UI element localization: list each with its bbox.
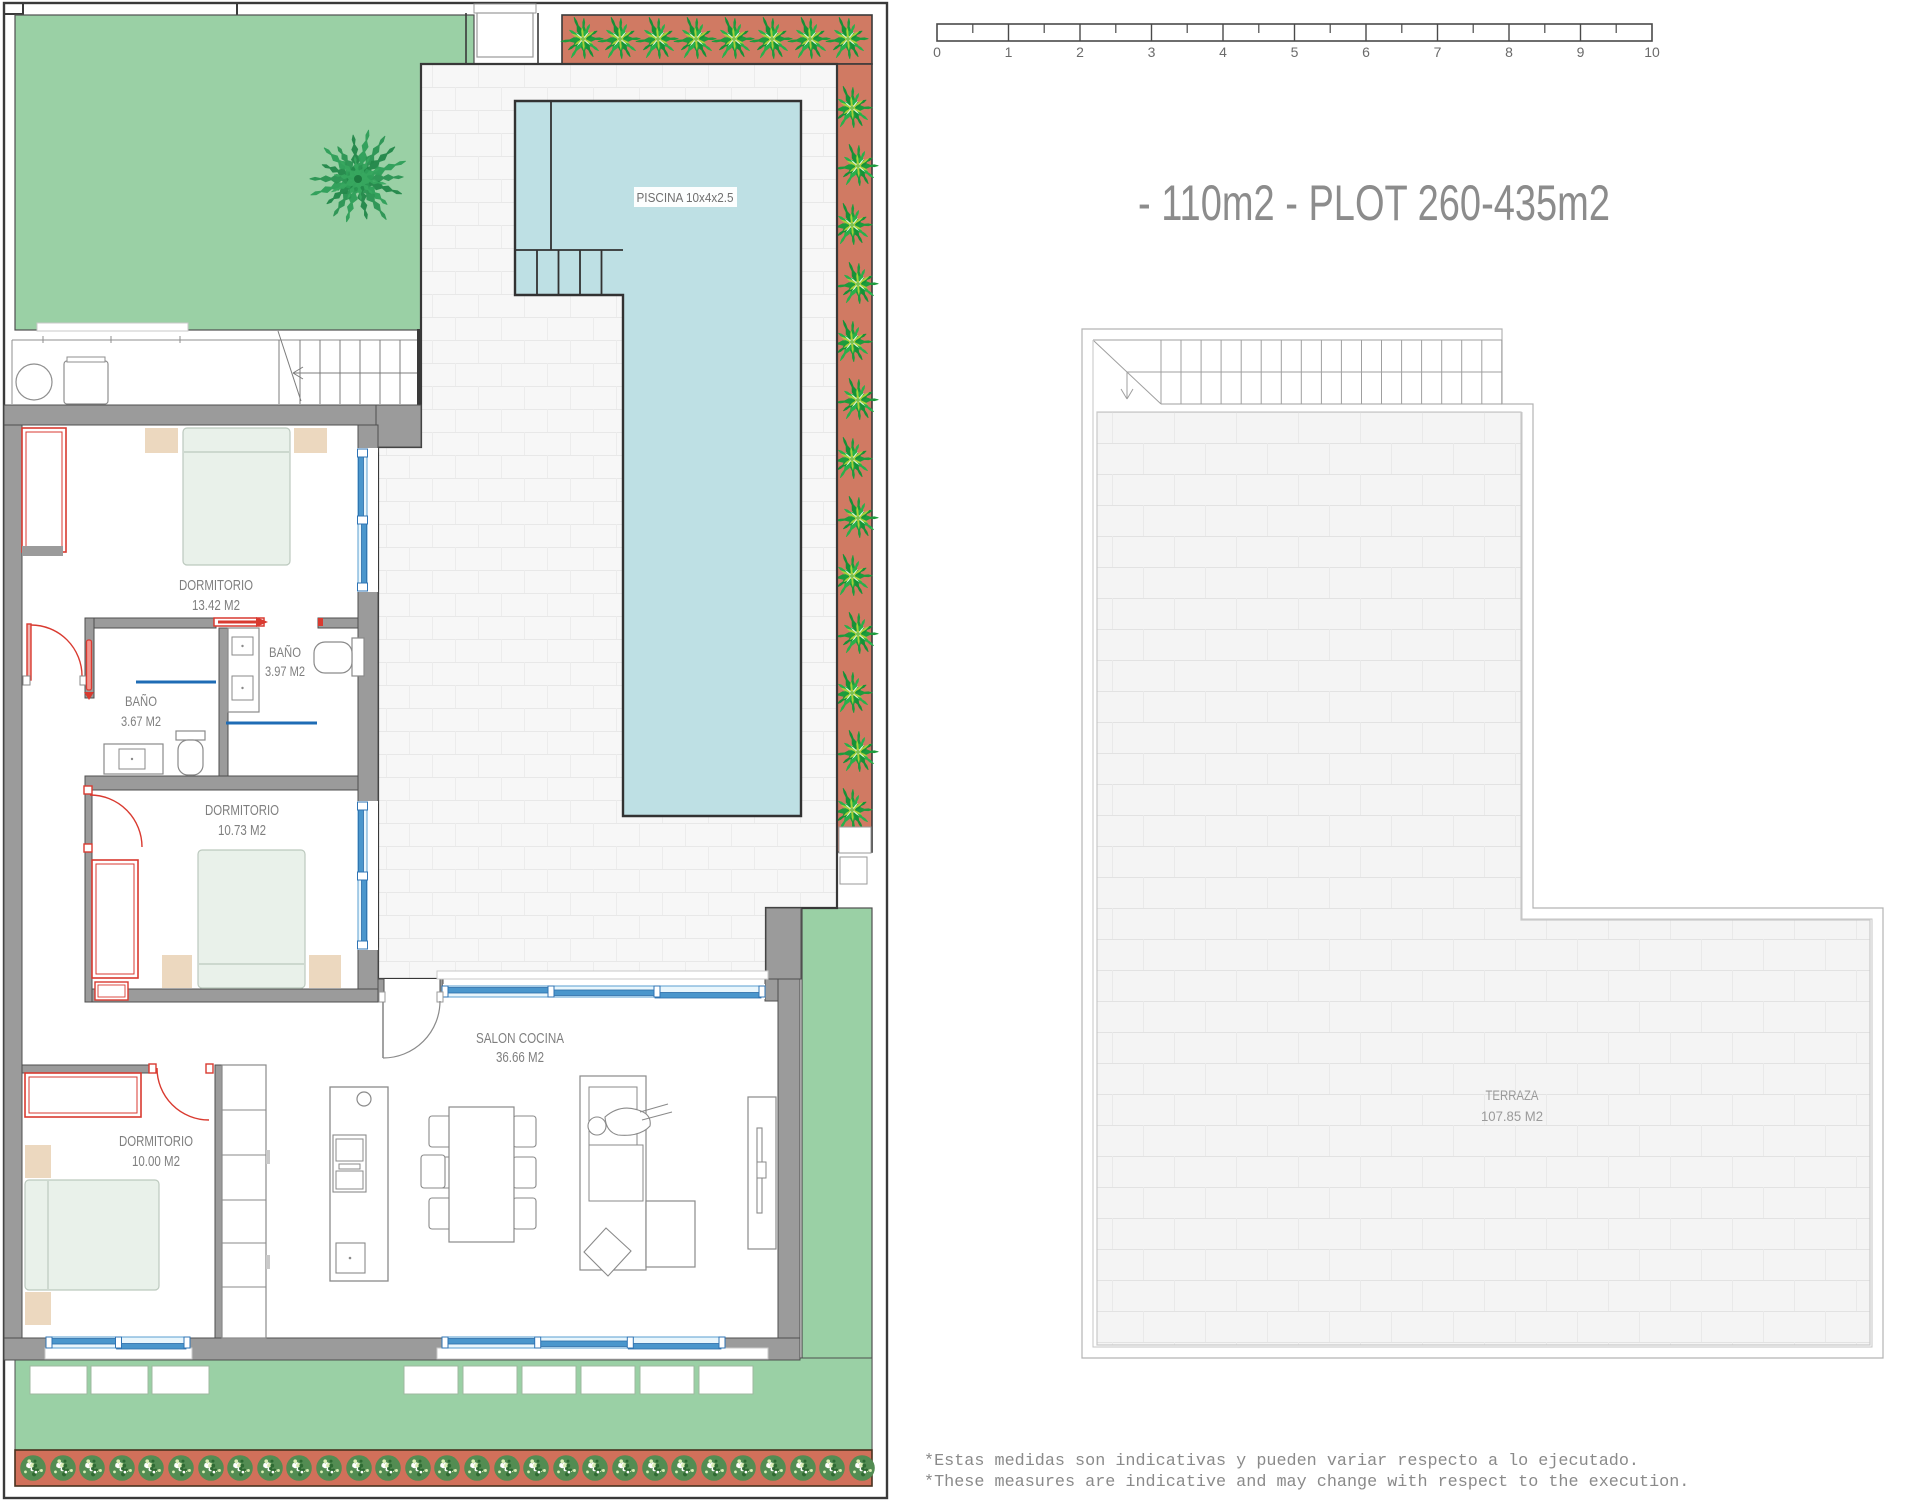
svg-text:0: 0: [933, 44, 941, 60]
svg-text:107.85 M2: 107.85 M2: [1481, 1108, 1543, 1124]
svg-text:DORMITORIO: DORMITORIO: [119, 1134, 193, 1150]
svg-text:PISCINA 10x4x2.5: PISCINA 10x4x2.5: [637, 190, 734, 205]
svg-text:10: 10: [1644, 44, 1660, 60]
svg-text:BAÑO: BAÑO: [269, 644, 301, 660]
svg-text:1: 1: [1005, 44, 1013, 60]
svg-text:DORMITORIO: DORMITORIO: [179, 578, 253, 594]
svg-text:7: 7: [1434, 44, 1442, 60]
svg-text:36.66 M2: 36.66 M2: [496, 1050, 544, 1066]
svg-text:4: 4: [1219, 44, 1227, 60]
svg-text:5: 5: [1291, 44, 1299, 60]
svg-text:3: 3: [1148, 44, 1156, 60]
svg-text:8: 8: [1505, 44, 1513, 60]
svg-text:- 110m2 - PLOT 260-435m2: - 110m2 - PLOT 260-435m2: [1138, 175, 1610, 231]
svg-text:BAÑO: BAÑO: [125, 693, 157, 709]
svg-text:2: 2: [1076, 44, 1084, 60]
svg-text:6: 6: [1362, 44, 1370, 60]
svg-text:10.00 M2: 10.00 M2: [132, 1154, 180, 1170]
svg-text:3.97 M2: 3.97 M2: [265, 663, 305, 679]
svg-text:DORMITORIO: DORMITORIO: [205, 803, 279, 819]
svg-text:*Estas medidas son indicativas: *Estas medidas son indicativas y pueden …: [924, 1452, 1639, 1471]
svg-text:9: 9: [1577, 44, 1585, 60]
svg-text:13.42 M2: 13.42 M2: [192, 598, 240, 614]
svg-text:*These measures are indicative: *These measures are indicative and may c…: [924, 1473, 1689, 1492]
svg-text:TERRAZA: TERRAZA: [1486, 1087, 1540, 1103]
svg-text:SALON COCINA: SALON COCINA: [476, 1031, 564, 1047]
svg-text:10.73 M2: 10.73 M2: [218, 823, 266, 839]
svg-text:3.67 M2: 3.67 M2: [121, 713, 161, 729]
